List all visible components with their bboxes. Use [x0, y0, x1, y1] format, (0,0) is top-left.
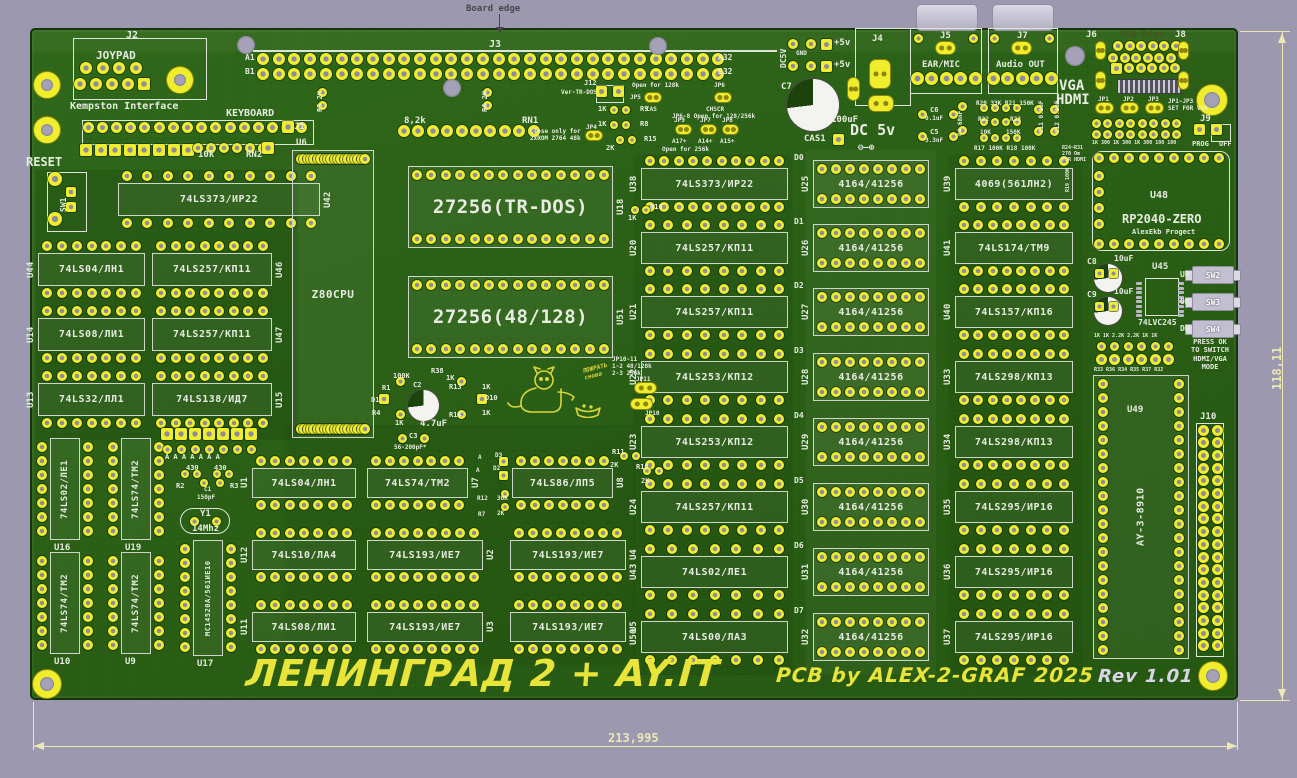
solder-pad: [469, 572, 479, 582]
chip-label-U28: 4164/41256: [814, 354, 928, 400]
solder-pad: [328, 500, 338, 510]
solder-pad: [200, 241, 210, 251]
solder-pad: [806, 61, 816, 71]
solder-pad: [1009, 609, 1019, 619]
chip-ref-U40: U40: [942, 296, 954, 328]
chip-label-U31: 4164/41256: [814, 549, 928, 595]
silk-text: J8: [1175, 30, 1186, 41]
solder-pad: [1059, 590, 1069, 600]
dim-height-arrow-up-icon: [1278, 33, 1286, 43]
solder-pad: [1002, 330, 1012, 340]
chip-ref-U27: U27: [800, 288, 812, 336]
solder-pad: [180, 586, 190, 596]
chip-ref-U38: U38: [628, 168, 640, 200]
solder-pad: [1212, 488, 1223, 499]
silk-text: C11 0.1uF: [1038, 100, 1045, 133]
solder-pad: [108, 484, 118, 494]
chip-ref-U44: U44: [25, 253, 37, 286]
solder-pad: [285, 600, 295, 610]
silk-text: 2K: [606, 144, 614, 152]
solder-pad: [1002, 460, 1012, 470]
chip-label-U6: Z80CPU: [293, 151, 373, 437]
dim-height-arrow-down-icon: [1278, 689, 1286, 699]
silk-text: J6: [1086, 30, 1097, 41]
solder-pad: [1137, 342, 1146, 351]
silk-text: R20 33K R21 150K: [976, 100, 1034, 107]
solder-pad: [688, 156, 698, 166]
solder-pad: [413, 500, 423, 510]
solder-pad: [74, 78, 86, 90]
solder-pad: [634, 53, 646, 65]
solder-pad: [612, 600, 622, 610]
solder-pad: [774, 156, 784, 166]
solder-pad: [342, 528, 352, 538]
silk-text: C8: [1087, 257, 1097, 266]
solder-pad: [1009, 479, 1019, 489]
solder-pad: [1108, 53, 1118, 63]
solder-pad: [239, 122, 250, 133]
silk-text: 1K: [482, 383, 490, 391]
silk-text: 14Mhz: [192, 524, 219, 535]
solder-pad: [414, 68, 426, 80]
silk-text: A14+: [698, 138, 712, 145]
silk-text: AlexEkb Progect: [1132, 228, 1195, 236]
solder-pad: [367, 53, 379, 65]
solder-pad: [168, 122, 179, 133]
silk-text: 1K: [598, 120, 606, 128]
solder-pad: [285, 500, 295, 510]
chip-label-U43: 74LS02/ЛЕ1: [642, 557, 787, 587]
chip-ref-U24: U24: [628, 491, 640, 523]
solder-pad: [1026, 525, 1036, 535]
chip-label-U40: 74LS157/КП16: [956, 297, 1072, 327]
silk-text: +5v: [834, 38, 850, 49]
solder-pad: [83, 640, 93, 650]
solder-pad: [1026, 202, 1036, 212]
solder-pad: [959, 544, 969, 554]
chip-label-U23: 74LS253/КП12: [642, 427, 787, 457]
solder-pad: [1109, 354, 1120, 365]
solder-pad: [1059, 525, 1069, 535]
solder-pad: [154, 556, 164, 566]
silk-text: J5: [940, 31, 951, 42]
solder-pad: [1026, 156, 1036, 166]
solder-pad: [1059, 609, 1069, 619]
solder-pad: [477, 53, 489, 65]
solder-pad: [1212, 590, 1223, 601]
solder-pad: [256, 528, 266, 538]
solder-pad: [414, 53, 426, 65]
silk-text: R13: [449, 383, 462, 391]
solder-pad: [1164, 342, 1173, 351]
solder-pad: [1002, 414, 1012, 424]
solder-pad: [556, 600, 566, 610]
solder-pad: [1045, 284, 1055, 294]
solder-pad: [954, 72, 967, 85]
solder-pad: [226, 642, 236, 652]
solder-pad: [1026, 479, 1036, 489]
jumper-pad: [715, 93, 731, 102]
silk-text: R6 2K: [481, 91, 489, 112]
dim-width-line: [33, 746, 1238, 747]
solder-pad: [1123, 354, 1134, 365]
solder-pad: [1212, 526, 1223, 537]
chip-label-U9: 74LS74/ТМ2: [122, 553, 150, 653]
solder-pad: [655, 467, 663, 475]
solder-pad: [398, 125, 410, 137]
silk-text: A32: [718, 53, 732, 62]
solder-pad: [988, 395, 998, 405]
solder-pad: [131, 353, 141, 363]
solder-pad: [925, 72, 938, 85]
solder-pad: [1149, 130, 1158, 139]
solder-pad: [756, 284, 766, 294]
jumper-pad: [645, 93, 661, 102]
jumper-pad: [586, 131, 602, 140]
solder-pad: [80, 144, 92, 156]
silk-text: J9: [1200, 114, 1211, 125]
solder-pad: [225, 122, 236, 133]
solder-pad: [204, 171, 214, 181]
solder-pad: [37, 584, 47, 594]
solder-pad: [959, 266, 969, 276]
silk-text: R33 R36 R34 R35 R37 R32: [1094, 368, 1163, 374]
solder-pad: [1212, 577, 1223, 588]
solder-pad: [540, 53, 552, 65]
solder-pad: [1045, 395, 1055, 405]
chip-label-U24: 74LS257/КП11: [642, 492, 787, 522]
solder-pad: [267, 122, 278, 133]
solder-pad: [598, 600, 608, 610]
solder-pad: [1199, 153, 1209, 163]
solder-pad: [226, 614, 236, 624]
solder-pad: [959, 349, 969, 359]
chip-label-U2: 74LS193/ИЕ7: [368, 541, 482, 569]
solder-pad: [1212, 628, 1223, 639]
solder-pad: [229, 371, 239, 381]
solder-pad: [558, 500, 568, 510]
silk-text: C7: [781, 82, 792, 93]
solder-pad: [719, 266, 729, 276]
solder-pad: [48, 172, 62, 186]
solder-pad: [1136, 300, 1142, 303]
silk-text: 10K: [980, 129, 991, 136]
solder-pad: [367, 68, 379, 80]
solder-pad: [124, 144, 136, 156]
solder-pad: [645, 590, 655, 600]
silk-text: 1K: [446, 374, 454, 382]
chip-ref-U2: U2: [485, 540, 497, 570]
jumper-pad: [936, 42, 955, 54]
jumper-pad: [631, 399, 652, 409]
solder-pad: [245, 218, 255, 228]
solder-pad: [231, 428, 243, 440]
silk-text: 430: [186, 464, 199, 472]
solder-pad: [1002, 266, 1012, 276]
solder-pad: [1009, 590, 1019, 600]
solder-pad: [1026, 609, 1036, 619]
solder-pad: [130, 62, 142, 74]
solder-pad: [430, 68, 442, 80]
chip-label-U7: 74LS74/ТМ2: [368, 469, 467, 497]
solder-pad: [138, 144, 150, 156]
solder-pad: [304, 68, 316, 80]
silkscreen-outline: [1145, 278, 1179, 316]
solder-pad: [1178, 282, 1184, 285]
solder-pad: [760, 156, 770, 166]
solder-pad: [72, 418, 82, 428]
solder-pad: [514, 600, 524, 610]
chip-ref-U32: U32: [800, 613, 812, 661]
solder-pad: [1198, 577, 1209, 588]
chip-label-U16: 74LS02/ЛЕ1: [51, 439, 79, 539]
solder-pad: [156, 418, 166, 428]
mounting-hole: [34, 72, 60, 98]
solder-pad: [37, 626, 47, 636]
audio-jack-body: [992, 4, 1054, 31]
chip-label-U8: 74LS86/ЛП5: [513, 469, 612, 497]
solder-pad: [383, 68, 395, 80]
solder-pad: [342, 600, 352, 610]
solder-pad: [731, 544, 741, 554]
solder-pad: [1045, 349, 1055, 359]
solder-pad: [697, 53, 709, 65]
solder-pad: [108, 512, 118, 522]
solder-pad: [454, 500, 464, 510]
solder-pad: [1151, 342, 1160, 351]
solder-pad: [233, 445, 242, 454]
solder-pad: [427, 528, 437, 538]
solder-pad: [988, 460, 998, 470]
silk-text: A: [478, 454, 482, 461]
jumper-pad: [1179, 72, 1188, 89]
solder-pad: [83, 442, 93, 452]
solder-pad: [427, 572, 437, 582]
solder-pad: [1178, 287, 1184, 290]
solder-pad: [1198, 552, 1209, 563]
silk-text: JP1~JP3 SET FOR VGA: [1168, 98, 1208, 112]
chip-ref-U37: U37: [942, 621, 954, 653]
solder-pad: [1212, 463, 1223, 474]
solder-pad: [1198, 463, 1209, 474]
audio-jack-body: [916, 4, 978, 31]
solder-pad: [1109, 302, 1118, 311]
dim-height-label: 118,11: [1270, 347, 1284, 390]
solder-pad: [958, 102, 967, 111]
silkscreen-rev: Rev 1.01: [1097, 666, 1194, 687]
solder-pad: [154, 456, 164, 466]
solder-pad: [108, 584, 118, 594]
silk-text: C5: [930, 128, 938, 136]
solder-pad: [1148, 41, 1158, 51]
silk-text: PCB Edge: [1120, 30, 1163, 41]
chip-label-U33: 74LS298/КП13: [956, 362, 1072, 392]
chip-ref-U18: U18: [615, 166, 627, 248]
solder-pad: [969, 34, 978, 43]
solder-pad: [122, 218, 132, 228]
solder-pad: [682, 266, 692, 276]
silk-text: 2K: [641, 477, 649, 485]
solder-pad: [42, 371, 52, 381]
solder-pad: [542, 600, 552, 610]
jumper-pad: [1012, 42, 1031, 54]
solder-pad: [37, 570, 47, 580]
solder-pad: [613, 86, 624, 97]
solder-pad: [514, 572, 524, 582]
silk-text: R14: [449, 411, 462, 419]
solder-pad: [57, 241, 67, 251]
dim-height-ext-bottom: [1240, 700, 1290, 701]
solder-pad: [57, 306, 67, 316]
solder-pad: [969, 72, 982, 85]
solder-pad: [1103, 130, 1112, 139]
jumper-pad: [1096, 72, 1105, 89]
solder-pad: [1094, 187, 1104, 197]
solder-pad: [1124, 342, 1133, 351]
silk-text: JP9: [674, 117, 685, 124]
solder-pad: [1154, 153, 1164, 163]
solder-pad: [756, 330, 766, 340]
chip-ref-U23: U23: [628, 426, 640, 458]
silk-text: R5 2K: [316, 91, 324, 112]
solder-pad: [959, 395, 969, 405]
solder-pad: [959, 525, 969, 535]
solder-pad: [342, 572, 352, 582]
silk-text: Open for 128k: [632, 82, 679, 89]
solder-pad: [1198, 513, 1209, 524]
chip-label-U36: 74LS295/ИР16: [956, 557, 1072, 587]
solder-pad: [154, 598, 164, 608]
silk-text: R10: [636, 463, 649, 471]
solder-pad: [42, 418, 52, 428]
silk-text: KEYBOARD: [226, 108, 274, 120]
solder-pad: [1212, 552, 1223, 563]
solder-pad: [774, 414, 784, 424]
solder-pad: [1178, 291, 1184, 294]
solder-pad: [1059, 220, 1069, 230]
solder-pad: [1045, 72, 1058, 85]
solder-pad: [256, 456, 266, 466]
silk-text: D1: [371, 396, 379, 404]
silk-text: R3: [230, 482, 238, 490]
solder-pad: [175, 428, 187, 440]
solder-pad: [756, 349, 766, 359]
solder-pad: [1161, 130, 1170, 139]
jumper-pad: [1179, 42, 1188, 59]
solder-pad: [1097, 342, 1106, 351]
solder-pad: [371, 528, 381, 538]
solder-pad: [1125, 41, 1135, 51]
solder-pad: [731, 590, 741, 600]
solder-pad: [108, 612, 118, 622]
silk-text: GND: [796, 50, 807, 57]
silk-text: R9: [640, 105, 648, 113]
solder-pad: [1199, 239, 1209, 249]
solder-pad: [385, 528, 395, 538]
solder-pad: [1002, 284, 1012, 294]
silkscreen-title: ЛЕНИНГРАД 2 + AY.IT: [244, 652, 721, 696]
solder-pad: [524, 68, 536, 80]
solder-pad: [1094, 219, 1104, 229]
chip-ref-U47: U47: [274, 318, 286, 351]
solder-pad: [558, 456, 568, 466]
solder-pad: [1059, 202, 1069, 212]
silk-text: JP10: [645, 410, 659, 417]
chip-label-U21: 74LS257/КП11: [642, 297, 787, 327]
chip-label-U13: 74LS32/ЛЛ1: [39, 384, 144, 415]
solder-pad: [959, 284, 969, 294]
silk-text: R4: [372, 409, 380, 417]
solder-pad: [682, 220, 692, 230]
solder-pad: [83, 456, 93, 466]
solder-pad: [262, 142, 274, 154]
solder-pad: [959, 609, 969, 619]
solder-pad: [1136, 314, 1142, 317]
solder-pad: [171, 418, 181, 428]
solder-pad: [682, 330, 692, 340]
solder-pad: [988, 349, 998, 359]
solder-pad: [1136, 282, 1142, 285]
silk-text: D7: [794, 606, 804, 615]
solder-pad: [570, 528, 580, 538]
solder-pad: [753, 544, 763, 554]
solder-pad: [584, 572, 594, 582]
silk-text: RN2: [246, 150, 262, 161]
chip-label-U42: 74LS373/ИР22: [119, 184, 319, 215]
silk-text: J7: [1017, 31, 1028, 42]
solder-pad: [719, 479, 729, 489]
chip-label-U38: 74LS373/ИР22: [642, 169, 787, 199]
solder-pad: [57, 353, 67, 363]
silk-text: 0.1uF: [925, 115, 943, 122]
solder-pad: [154, 612, 164, 622]
solder-pad: [226, 572, 236, 582]
silk-text: 100K: [393, 372, 410, 380]
solder-pad: [833, 134, 844, 145]
solder-pad: [217, 428, 229, 440]
solder-pad: [682, 395, 692, 405]
solder-pad: [299, 456, 309, 466]
solder-pad: [587, 53, 599, 65]
jumper-pad: [723, 125, 738, 134]
solder-pad: [108, 498, 118, 508]
solder-pad: [180, 558, 190, 568]
solder-pad: [427, 600, 437, 610]
chip-ref-U46: U46: [274, 253, 286, 286]
solder-pad: [87, 418, 97, 428]
solder-pad: [229, 306, 239, 316]
solder-pad: [598, 528, 608, 538]
solder-pad: [682, 349, 692, 359]
solder-pad: [131, 418, 141, 428]
solder-pad: [379, 394, 389, 404]
solder-pad: [1159, 41, 1169, 51]
solder-pad: [37, 456, 47, 466]
solder-pad: [229, 288, 239, 298]
solder-pad: [1059, 414, 1069, 424]
solder-pad: [688, 590, 698, 600]
solder-pad: [37, 526, 47, 536]
solder-pad: [645, 330, 655, 340]
solder-pad: [988, 220, 998, 230]
silk-text: DC 5v: [850, 122, 895, 140]
solder-pad: [731, 202, 741, 212]
solder-pad: [991, 134, 999, 142]
solder-pad: [1094, 153, 1104, 163]
solder-pad: [1136, 41, 1146, 51]
solder-pad: [1198, 539, 1209, 550]
silk-text: EAR/MIC: [922, 60, 960, 71]
